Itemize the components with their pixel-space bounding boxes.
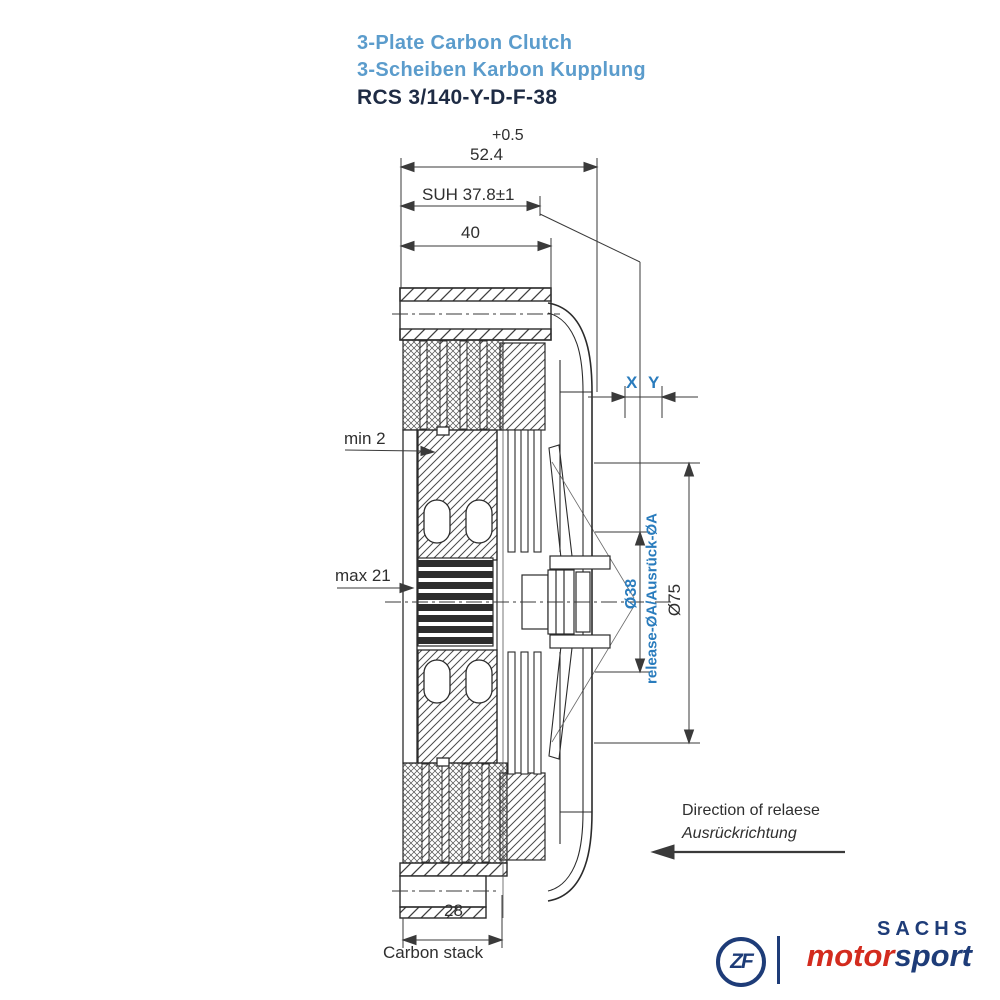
dim-tolerance: +0.5 [492,127,524,145]
product-title-en: 3-Plate Carbon Clutch [357,32,572,55]
product-title-de: 3-Scheiben Karbon Kupplung [357,59,646,82]
dim-overall-depth: 52.4 [470,145,503,165]
dim-release-diameter-label: release-ØA/Ausrück-ØA [644,494,661,704]
hub-top [418,427,497,560]
dim-carbon-stack-width: 28 [444,901,463,921]
product-model-number: RCS 3/140-Y-D-F-38 [357,86,557,110]
label-carbon-stack: Carbon stack [383,943,483,963]
dim-bearing-outer-diameter: Ø75 [665,570,685,630]
zf-monogram: ZF [730,950,752,974]
dim-travel-y: Y [648,373,659,393]
carbon-stack-top [403,340,503,430]
release-direction-arrow [652,845,845,859]
dim-min-wear: min 2 [344,429,386,449]
dim-release-diameter: Ø38 [623,564,641,624]
motorsport-suffix: sport [895,938,973,973]
dim-travel-x: X [626,373,637,393]
pressure-plate-top [500,343,545,430]
pressure-plate-bottom [500,773,545,860]
note-release-direction-en: Direction of relaese [682,802,820,820]
hub-bottom [418,650,497,766]
note-release-direction-de: Ausrückrichtung [682,825,797,843]
dim-cover-depth: 40 [461,223,480,243]
hub-front-wall [403,430,417,763]
flywheel-band-top [392,288,560,340]
dim-max-wear: max 21 [335,566,391,586]
drawing-sheet: 3-Plate Carbon Clutch 3-Scheiben Karbon … [0,0,1000,1000]
brand-divider [777,936,780,984]
zf-logo: ZF [716,937,766,987]
dim-suh: SUH 37.8±1 [422,185,515,205]
motorsport-prefix: motor [807,938,895,973]
motorsport-wordmark: motorsport [807,938,972,974]
carbon-stack-bottom [403,763,507,863]
